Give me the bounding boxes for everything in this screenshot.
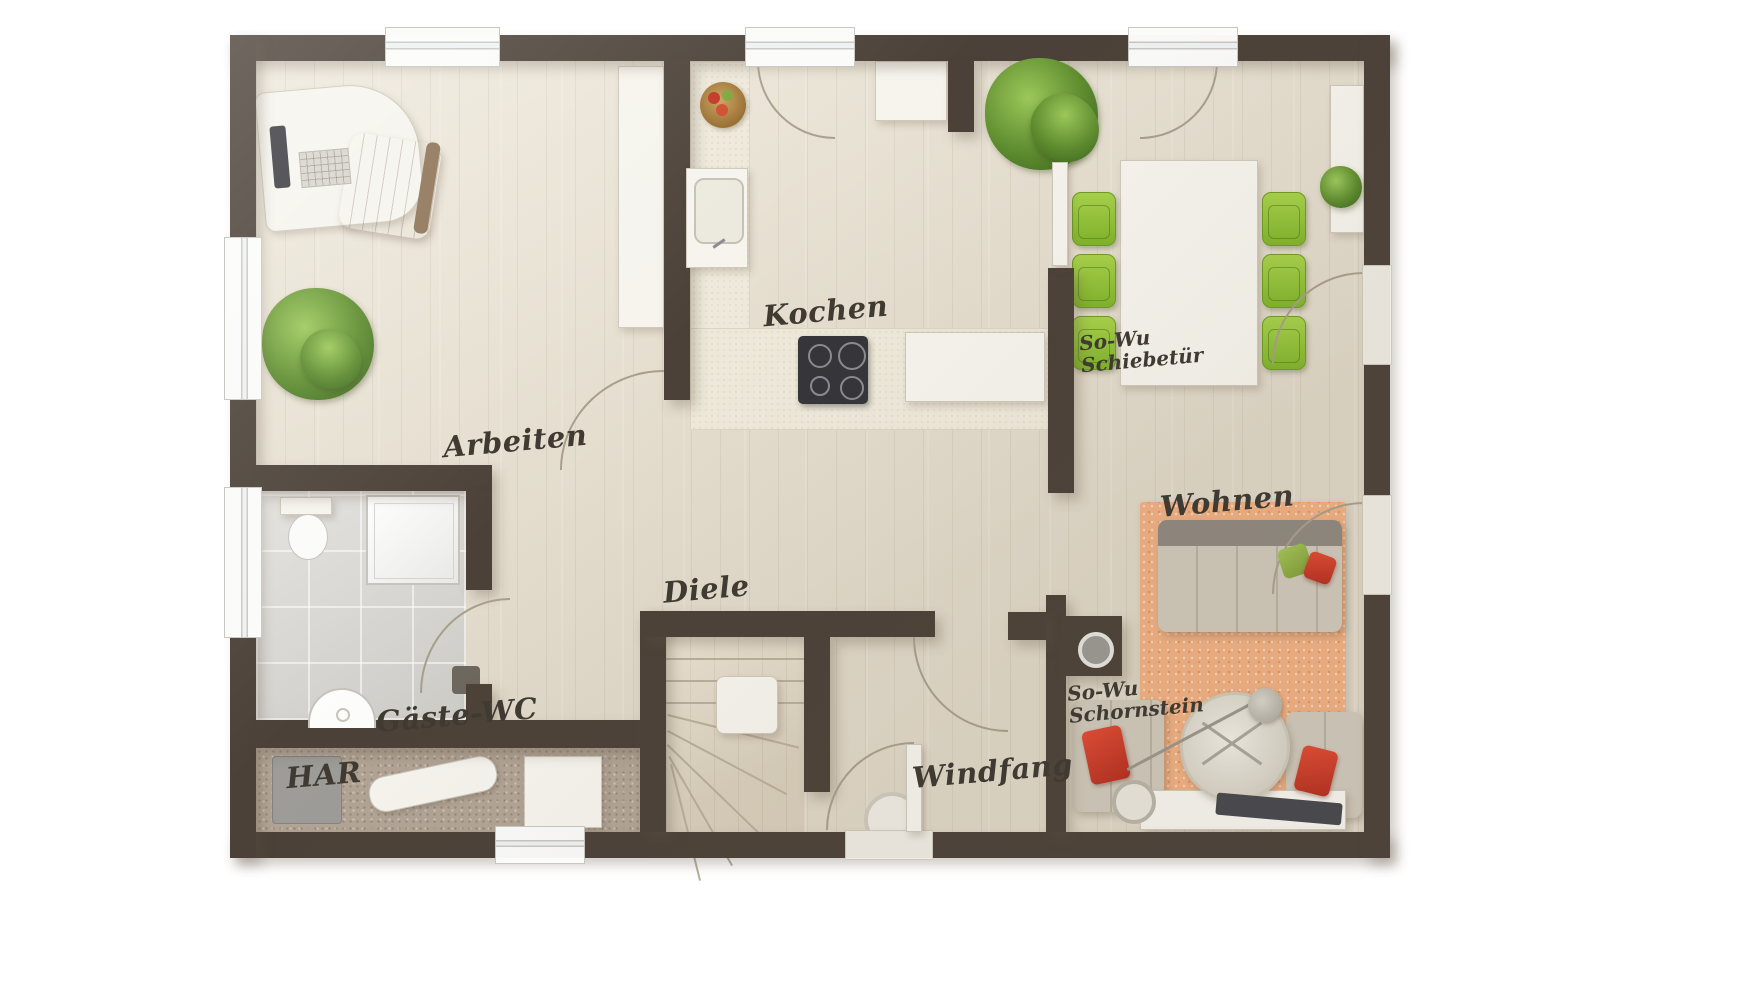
dining-chair-left-1 xyxy=(1072,192,1116,246)
terrace-door-bottom xyxy=(1362,495,1392,595)
floorplan-canvas: Arbeiten Kochen Wohnen Diele Windfang Gä… xyxy=(0,0,1752,985)
kitchen-worktop-slab xyxy=(905,332,1045,402)
window-left-arbeiten xyxy=(224,237,262,400)
fridge xyxy=(875,61,947,121)
wall-outer-bottom xyxy=(230,832,1390,858)
terrace-door-top xyxy=(1362,265,1392,365)
stair-landing xyxy=(716,676,778,734)
window-top-wohnen xyxy=(1128,27,1238,67)
sliding-door-panel xyxy=(1052,162,1068,266)
wall-arbeiten-bottom xyxy=(256,465,492,491)
chimney-flue-circle xyxy=(1078,632,1114,668)
keyboard xyxy=(299,148,352,188)
wall-outer-left xyxy=(230,35,256,858)
stove-burner-4 xyxy=(840,376,864,400)
wall-outer-right xyxy=(1364,35,1390,858)
wall-stairs-right xyxy=(804,637,830,792)
wall-wc-right-upper xyxy=(466,491,492,590)
stove-burner-2 xyxy=(838,342,866,370)
washbasin-drain xyxy=(336,708,350,722)
window-bottom-har xyxy=(495,826,585,864)
plant-small-right xyxy=(1320,166,1362,208)
floor-stairs xyxy=(666,637,804,832)
arbeiten-cabinet xyxy=(618,66,664,328)
toilet-bowl xyxy=(288,514,328,560)
dining-chair-right-1 xyxy=(1262,192,1306,246)
window-top-kochen xyxy=(745,27,855,67)
label-har: HAR xyxy=(285,755,363,795)
stove-burner-1 xyxy=(808,344,832,368)
window-top-arbeiten xyxy=(385,27,500,67)
shower-inner-line xyxy=(374,503,454,579)
sideboard-right xyxy=(1330,85,1364,233)
stove-burner-3 xyxy=(810,376,830,396)
wall-windfang-top xyxy=(830,611,935,637)
arc-lamp-shade xyxy=(1248,688,1282,722)
fruit-green xyxy=(722,90,733,101)
wall-kitchen-top-stub xyxy=(948,61,974,132)
window-left-wc xyxy=(224,487,262,638)
wall-stairs-top xyxy=(640,611,830,637)
wall-stairs-left xyxy=(640,611,666,832)
stair-tread-1 xyxy=(666,658,804,660)
toilet-tank xyxy=(280,497,332,515)
wall-kochen-wohnen xyxy=(1048,268,1074,493)
chimney-left-stub xyxy=(1008,612,1046,640)
fruit-red xyxy=(708,92,720,104)
har-sideboard xyxy=(524,756,602,828)
kitchen-sink-basin xyxy=(694,178,744,244)
entrance-threshold xyxy=(845,830,933,860)
dining-chair-left-2 xyxy=(1072,254,1116,308)
fruit-red-2 xyxy=(716,104,728,116)
arc-lamp-base xyxy=(1112,780,1156,824)
